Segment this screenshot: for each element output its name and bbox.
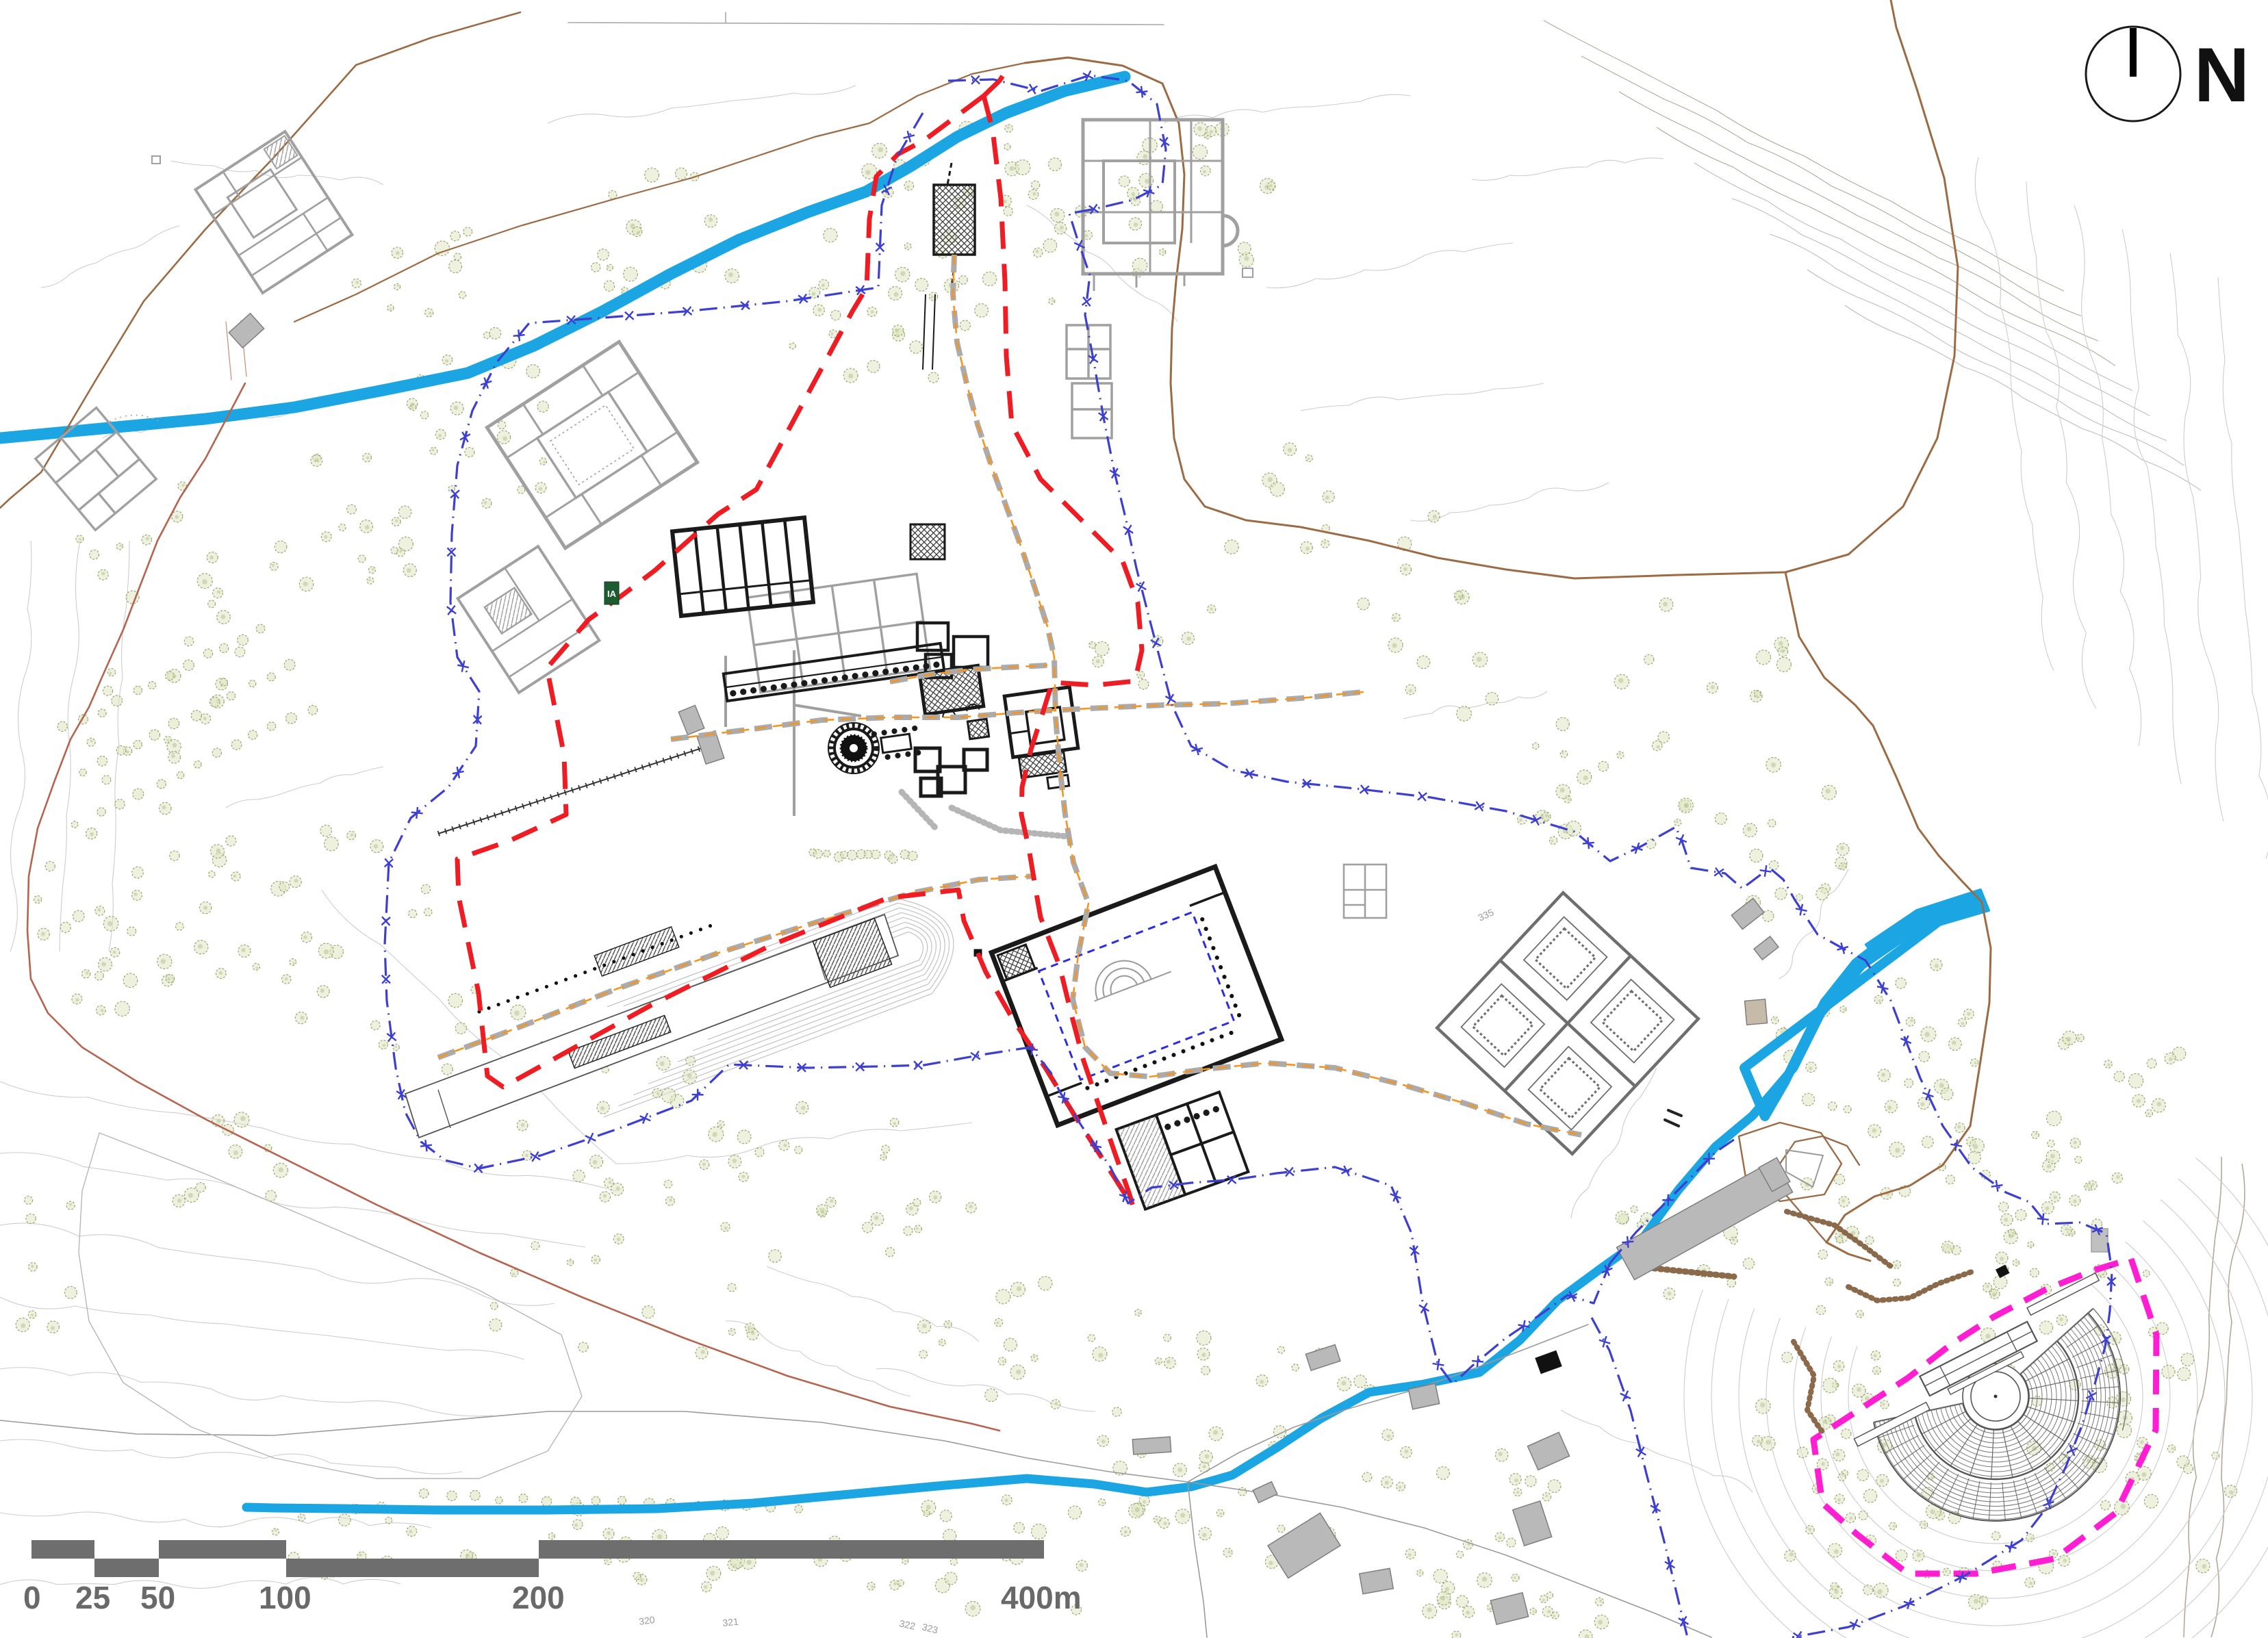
temple-of-artemis [967,719,989,739]
site-marker-label: IA [607,589,617,599]
scale-bar-segment [286,1559,539,1577]
scale-bar-segment [539,1540,1044,1559]
scale-value: 25 [75,1580,110,1615]
site-marker: IA [604,582,619,604]
small-gray-structure-3 [2091,1229,2108,1252]
scale-bar-segment [94,1559,159,1577]
scale-value: 50 [140,1580,175,1615]
site-map: 320 321 322 323 335 IA 0 25 50 100 200 4… [0,0,2268,1638]
scale-value: 0 [23,1580,41,1615]
scale-value: 400m [1001,1580,1082,1615]
north-label: N [2194,32,2250,118]
contour-elevation-label: 320 [638,1614,656,1627]
modern-building [1132,1437,1171,1455]
small-hatched-temple-nw [910,524,945,559]
north-arrow: N [2086,27,2250,121]
orchestra-center-dot [1994,1395,1998,1398]
modern-building [1745,999,1768,1025]
scale-value: 200 [512,1580,565,1615]
contour-elevation-label: 321 [722,1616,739,1628]
scale-bar-segment [31,1540,94,1559]
map-canvas: 320 321 322 323 335 IA 0 25 50 100 200 4… [0,0,2268,1638]
scale-value: 100 [259,1580,311,1615]
scale-bar-segment [159,1540,286,1559]
